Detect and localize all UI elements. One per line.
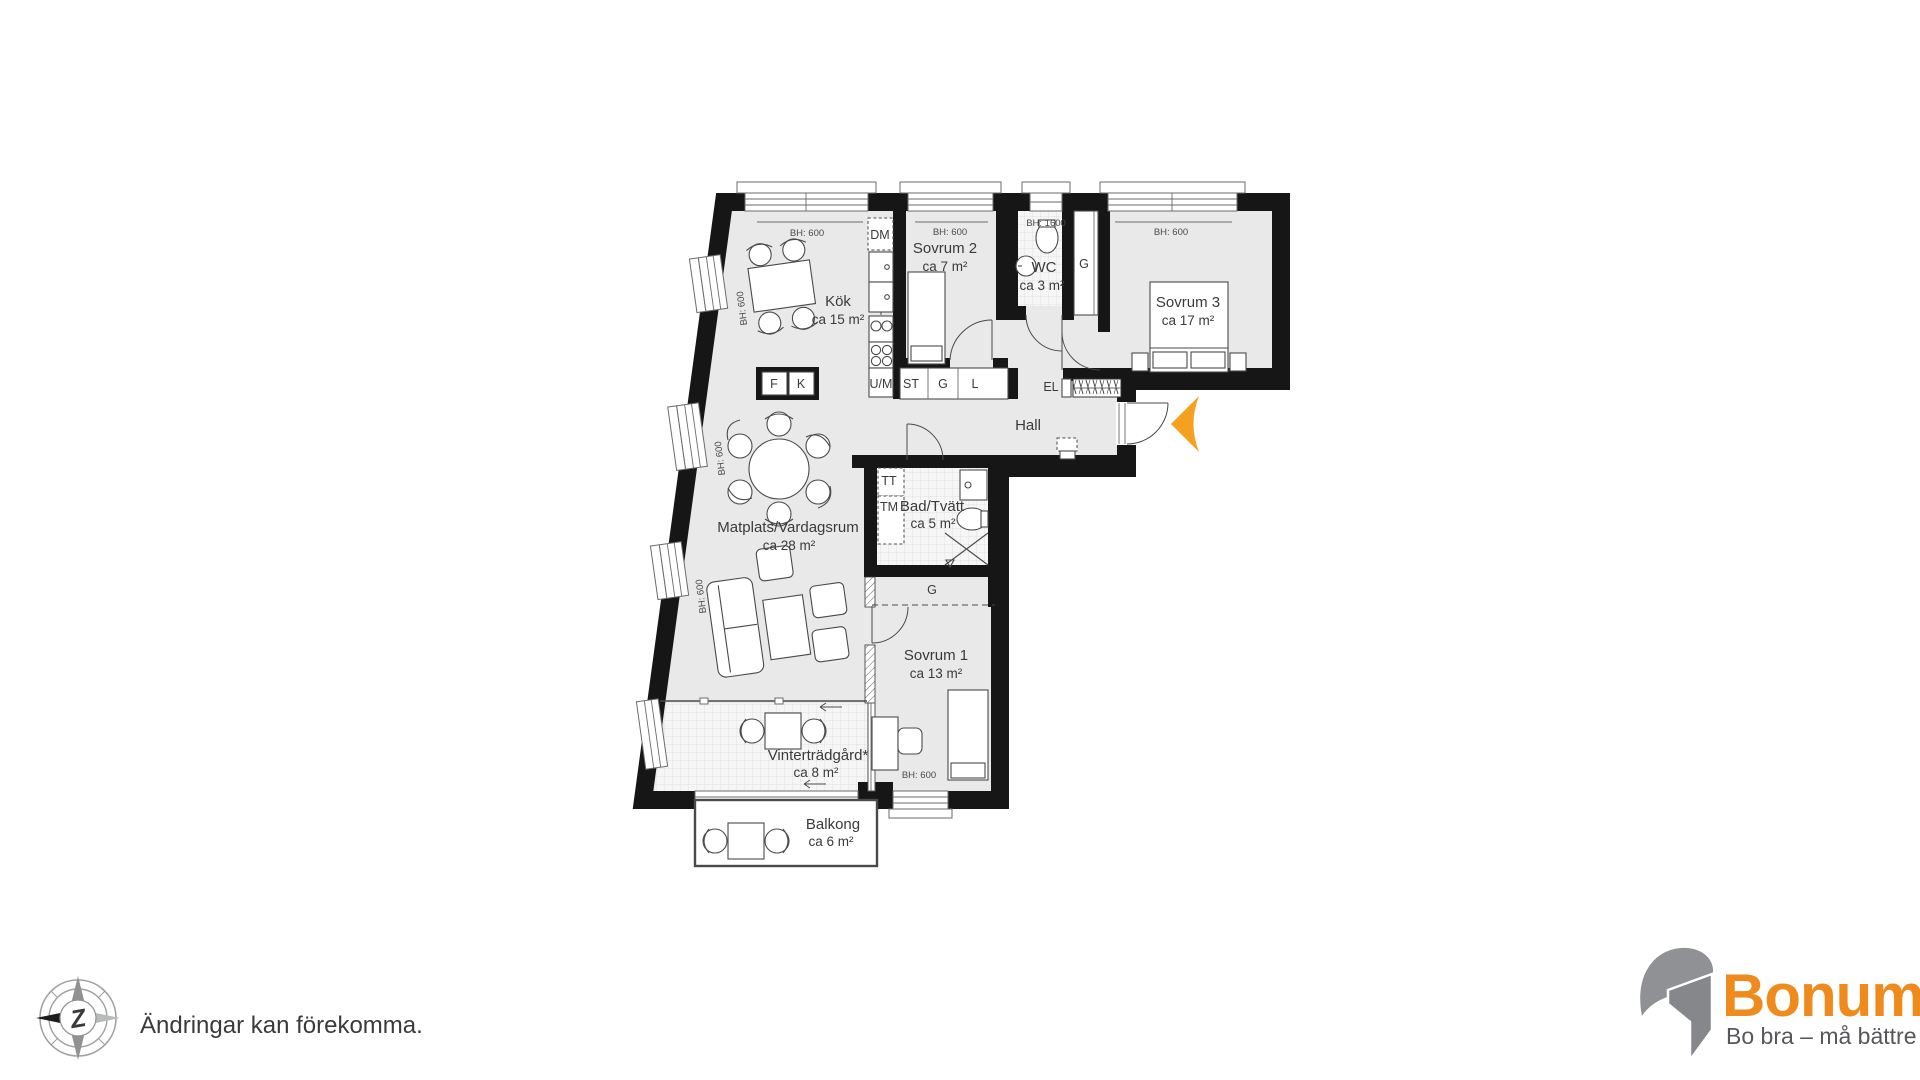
room-area-kok: ca 15 m² bbox=[812, 312, 865, 327]
bh-label: BH: 600 bbox=[902, 770, 936, 781]
entrance-arrow-icon bbox=[1171, 396, 1199, 452]
label-tt: TT bbox=[881, 474, 897, 488]
disclaimer-text: Ändringar kan förekomma. bbox=[140, 1012, 423, 1039]
label-st: ST bbox=[903, 377, 919, 391]
room-label-vardagsrum: Matplats/Vardagsrum bbox=[717, 519, 858, 536]
label-l: L bbox=[972, 377, 979, 391]
bonum-tagline: Bo bra – må bättre bbox=[1726, 1023, 1917, 1049]
bonum-logo-fold bbox=[1668, 974, 1712, 1060]
balcony bbox=[695, 800, 877, 866]
label-el: EL bbox=[1043, 380, 1058, 394]
room-area-sovrum2: ca 7 m² bbox=[922, 259, 968, 274]
room-label-vintertradgard: Vinterträdgård* bbox=[768, 747, 869, 764]
bh-label: BH: 600 bbox=[1154, 227, 1188, 238]
room-label-hall: Hall bbox=[1015, 417, 1041, 434]
room-area-sovrum1: ca 13 m² bbox=[910, 666, 963, 681]
hall-dashed-unit bbox=[1057, 438, 1077, 459]
room-label-balkong: Balkong bbox=[806, 816, 860, 833]
label-f: F bbox=[770, 377, 778, 391]
label-g-wc: G bbox=[1079, 257, 1089, 271]
label-g: G bbox=[938, 377, 948, 391]
room-label-bad: Bad/Tvätt bbox=[900, 498, 965, 515]
room-area-vardagsrum: ca 28 m² bbox=[763, 538, 816, 553]
room-area-wc: ca 3 m² bbox=[1019, 278, 1065, 293]
room-area-vintertradgard: ca 8 m² bbox=[793, 765, 839, 780]
room-label-wc: WC bbox=[1032, 259, 1057, 276]
label-k: K bbox=[797, 377, 806, 391]
label-tm: TM bbox=[880, 500, 898, 514]
bh-label: BH: 600 bbox=[790, 228, 824, 239]
fridge-freezer-unit bbox=[756, 367, 819, 400]
room-label-sovrum3: Sovrum 3 bbox=[1156, 294, 1220, 311]
room-label-sovrum2: Sovrum 2 bbox=[913, 240, 977, 257]
bh-label: BH: 600 bbox=[933, 227, 967, 238]
bonum-wordmark: Bonum bbox=[1722, 962, 1920, 1029]
room-area-sovrum3: ca 17 m² bbox=[1162, 313, 1215, 328]
room-label-sovrum1: Sovrum 1 bbox=[904, 647, 968, 664]
floor-plan-canvas: Kök ca 15 m² Sovrum 2 ca 7 m² WC ca 3 m²… bbox=[0, 0, 1920, 1080]
kitchen-counter bbox=[868, 218, 893, 397]
compass: Z bbox=[36, 976, 120, 1060]
room-area-balkong: ca 6 m² bbox=[808, 834, 854, 849]
bh-label: BH: 1600 bbox=[1026, 218, 1066, 229]
label-dm: DM bbox=[870, 228, 889, 242]
label-g-sovrum1: G bbox=[927, 583, 937, 597]
bed-sovrum2 bbox=[908, 272, 945, 364]
room-area-bad: ca 5 m² bbox=[910, 516, 956, 531]
bonum-logo: Bonum Bo bra – må bättre bbox=[1640, 948, 1920, 1060]
label-um: U/M bbox=[870, 377, 893, 391]
room-label-kok: Kök bbox=[825, 293, 851, 310]
el-cabinet-and-rack bbox=[1062, 379, 1121, 397]
